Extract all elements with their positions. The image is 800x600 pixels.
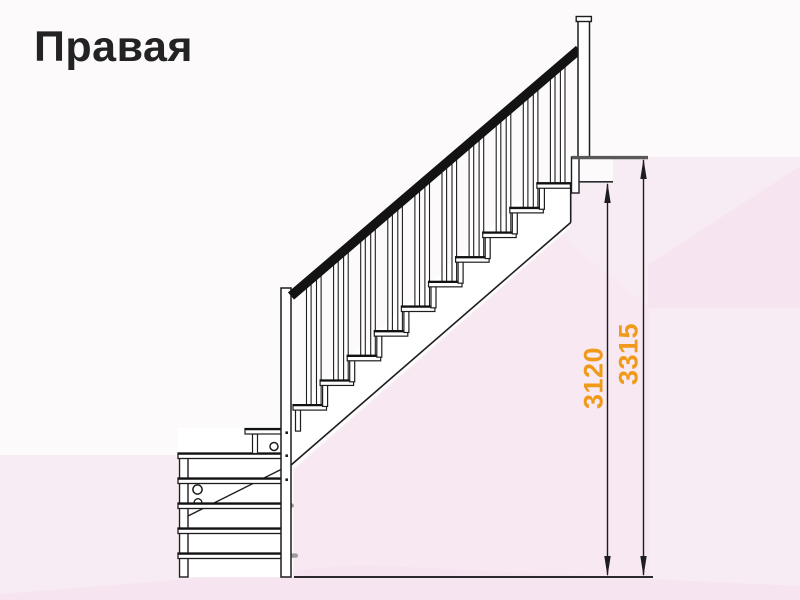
- tread-support-strut: [404, 311, 409, 333]
- tread-support-strut: [458, 262, 463, 284]
- baluster: [371, 229, 376, 356]
- baluster: [560, 67, 565, 184]
- post-cap: [576, 17, 591, 22]
- baluster: [452, 160, 457, 283]
- baluster: [317, 276, 322, 406]
- baluster: [442, 168, 447, 282]
- tread-support-strut: [431, 286, 436, 308]
- tread-support-strut: [539, 188, 544, 210]
- top-newel-post: [576, 17, 591, 158]
- baluster: [469, 145, 474, 258]
- staircase-drawing-page: Правая 3120 3315: [0, 0, 800, 600]
- baluster: [550, 76, 555, 184]
- screw-head: [270, 443, 278, 451]
- baluster: [533, 90, 538, 208]
- baluster: [523, 99, 528, 209]
- baluster: [415, 191, 420, 307]
- tread-support-strut: [323, 385, 328, 407]
- mount-hole: [193, 485, 202, 494]
- staircase-diagram: [0, 0, 800, 600]
- baluster: [388, 215, 393, 332]
- baluster: [496, 122, 501, 233]
- landing-fascia: [572, 157, 580, 193]
- tread-support-strut: [485, 237, 490, 258]
- baluster: [479, 137, 484, 258]
- page-title: Правая: [34, 24, 193, 71]
- tread-support-strut: [377, 336, 382, 358]
- baluster: [334, 261, 339, 381]
- baluster: [344, 253, 349, 381]
- baluster: [398, 206, 403, 332]
- baluster: [307, 284, 312, 405]
- baluster: [425, 183, 430, 307]
- winder-tread-support: [253, 434, 258, 454]
- tread-support-strut: [296, 410, 301, 432]
- tread-support-strut: [512, 212, 517, 234]
- baluster: [361, 238, 366, 356]
- baluster: [506, 113, 511, 233]
- tread-support-strut: [350, 360, 355, 382]
